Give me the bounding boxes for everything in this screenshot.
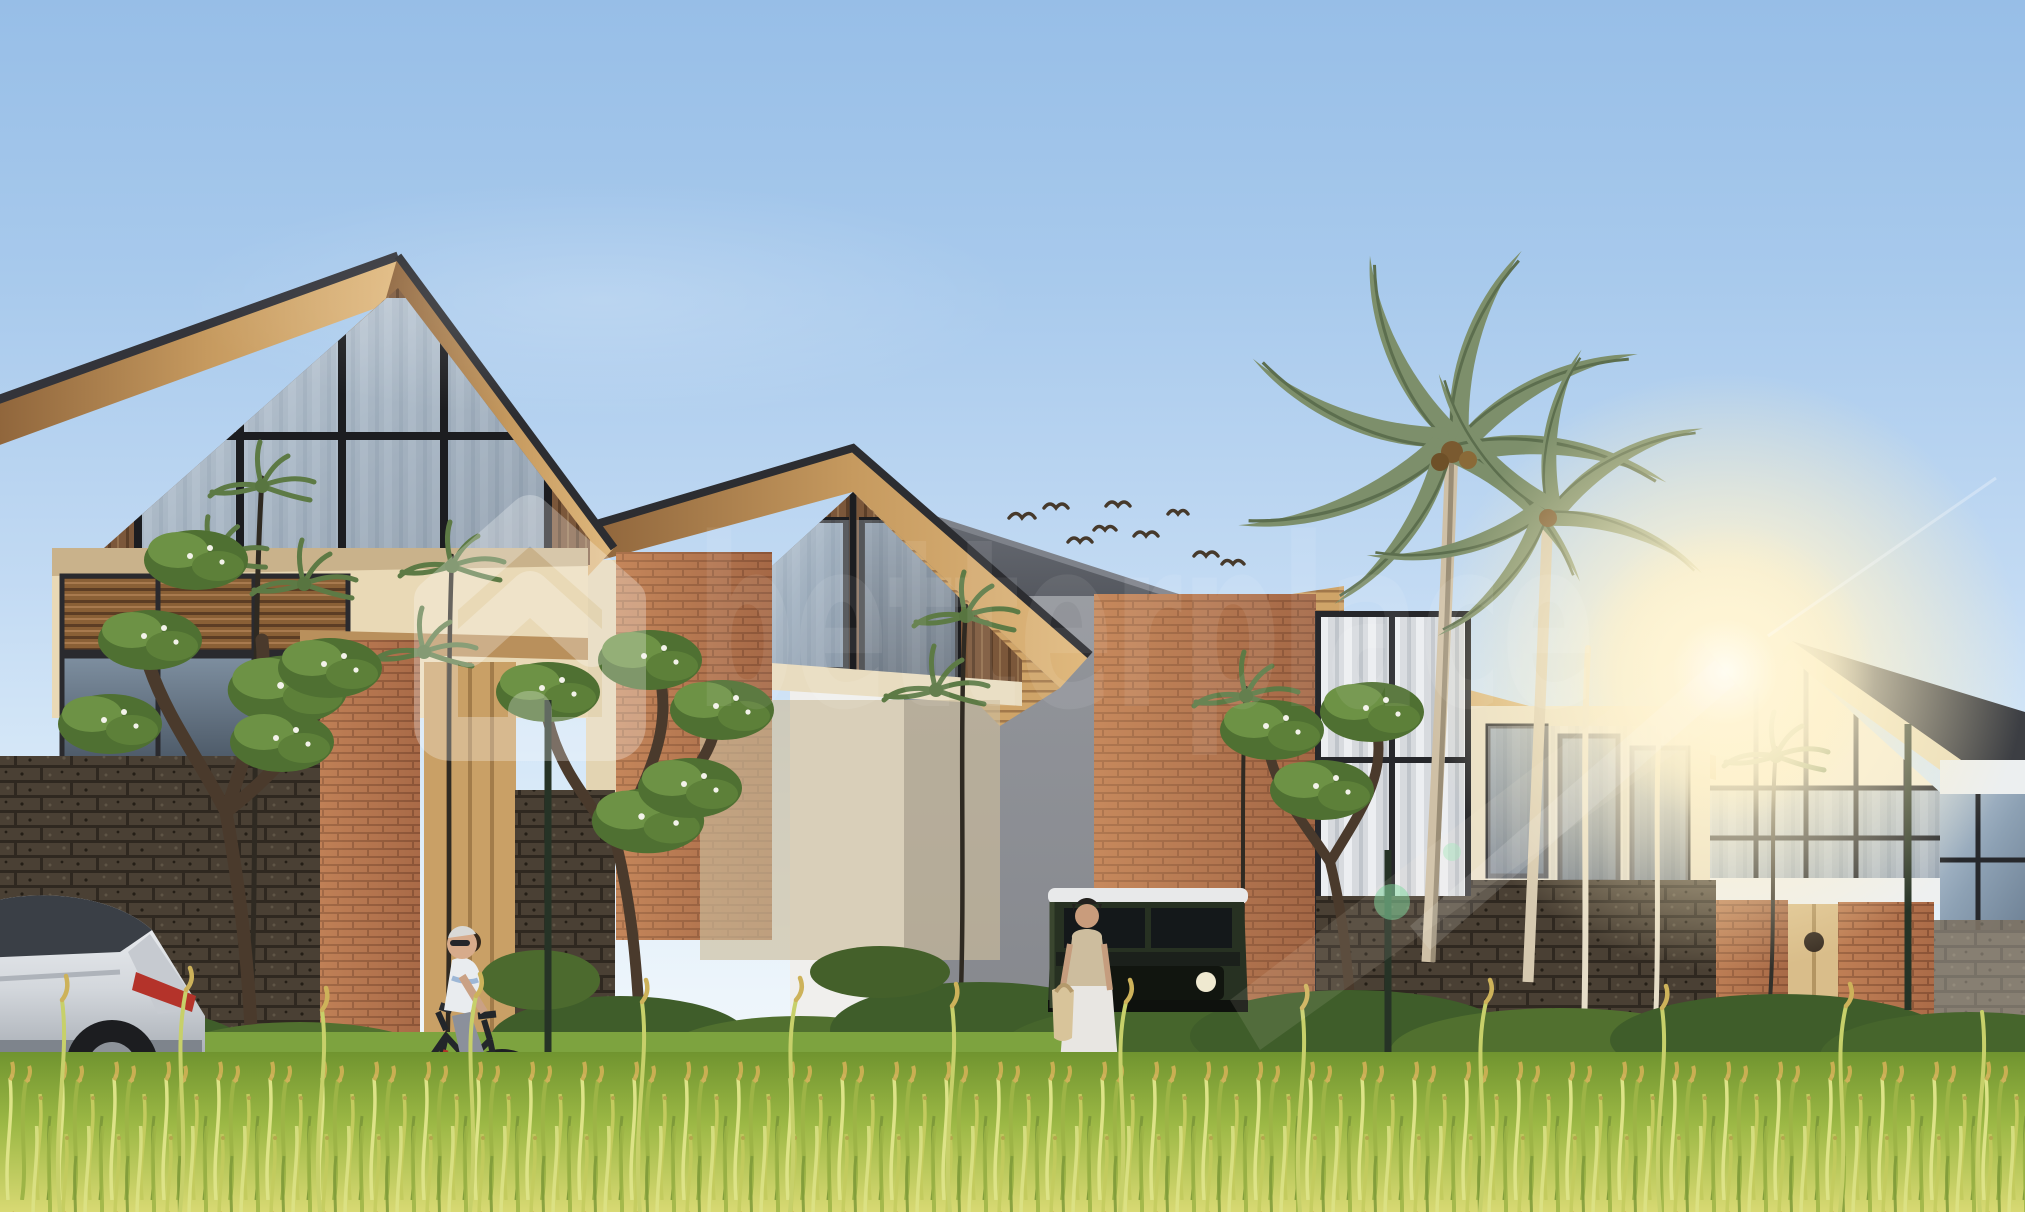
lens-artifact xyxy=(1443,843,1461,861)
tote-bag xyxy=(1052,987,1074,1041)
lens-artifact xyxy=(1374,884,1410,920)
architectural-rendering: betterplace xyxy=(0,0,2025,1212)
watermark-text: betterplace xyxy=(695,489,1595,762)
sunglasses xyxy=(450,940,470,946)
scene-canvas: betterplace xyxy=(0,0,2025,1212)
blouse xyxy=(1066,929,1108,986)
headlight xyxy=(1196,972,1216,992)
head xyxy=(1075,904,1099,928)
